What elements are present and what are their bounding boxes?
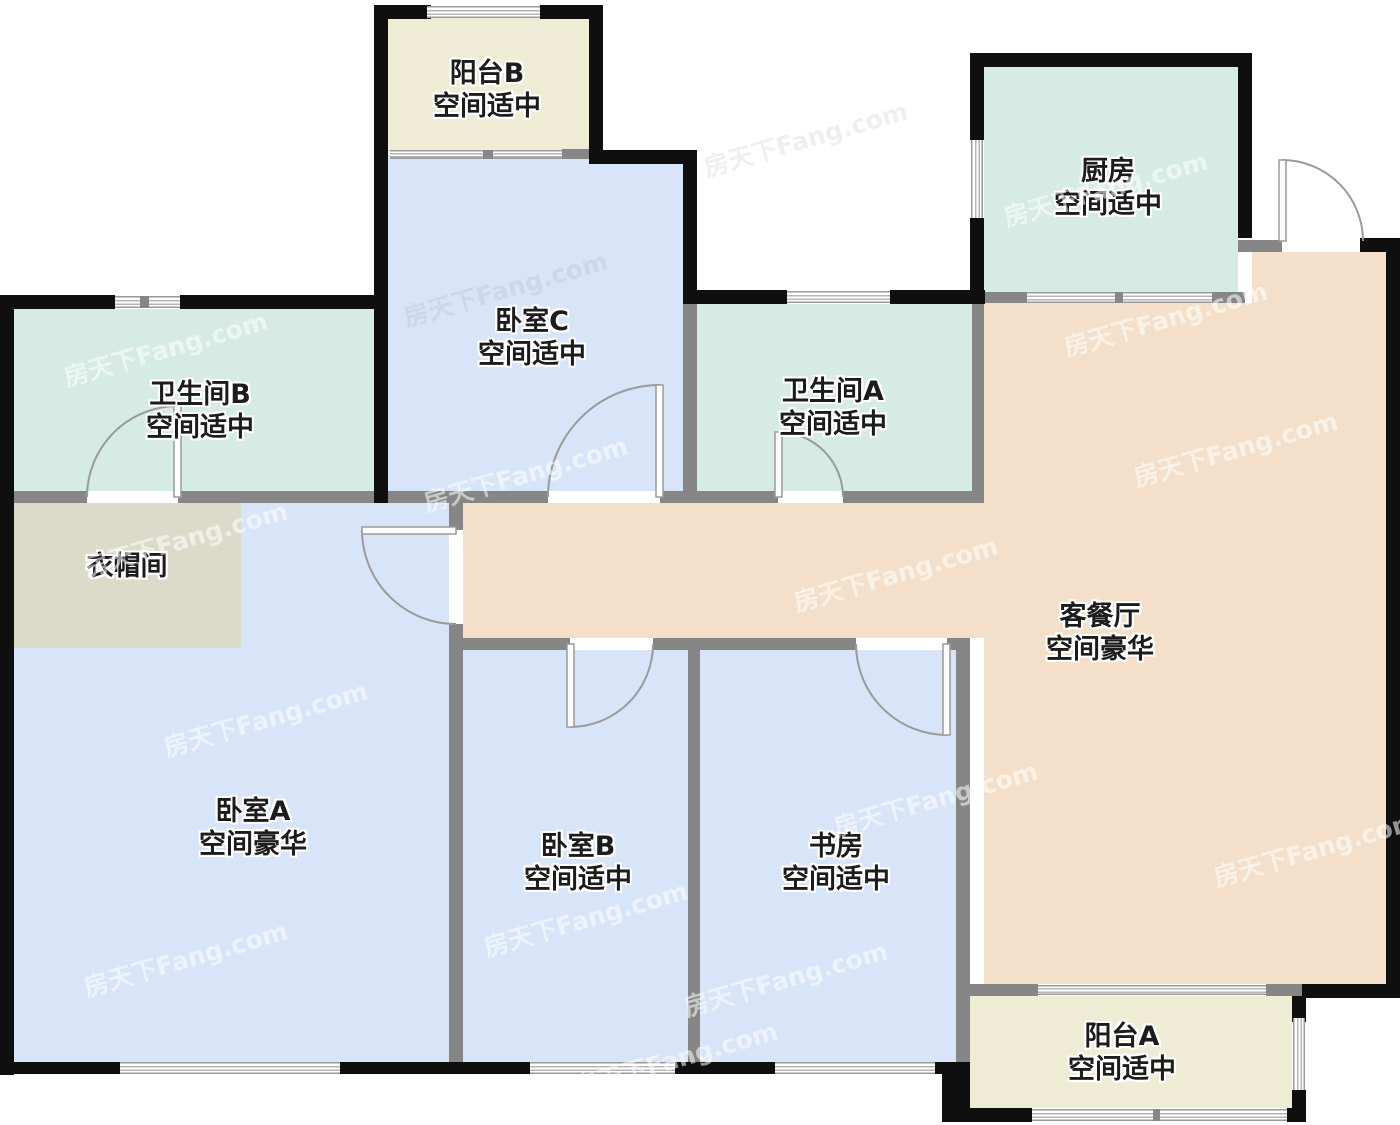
room-name: 书房	[782, 830, 890, 863]
door-bathroom-a	[775, 432, 843, 497]
room-name: 卧室B	[524, 830, 632, 863]
door-swings-layer	[0, 0, 1400, 1125]
room-label-cloakroom: 衣帽间	[87, 550, 168, 583]
room-name: 卫生间A	[779, 375, 887, 408]
room-desc: 空间适中	[782, 863, 890, 896]
room-label-bathroom-a: 卫生间A 空间适中	[779, 375, 887, 441]
room-label-bedroom-a: 卧室A 空间豪华	[199, 795, 307, 861]
room-label-balcony-b: 阳台B 空间适中	[433, 57, 541, 123]
room-desc: 空间适中	[1054, 188, 1162, 221]
room-label-bedroom-c: 卧室C 空间适中	[478, 305, 586, 371]
room-label-bedroom-b: 卧室B 空间适中	[524, 830, 632, 896]
room-name: 厨房	[1054, 155, 1162, 188]
room-name: 卧室C	[478, 305, 586, 338]
door-bedroom-c	[548, 385, 663, 497]
room-desc: 空间适中	[779, 408, 887, 441]
room-desc: 空间适中	[1068, 1053, 1176, 1086]
room-desc: 空间适中	[524, 863, 632, 896]
door-entry	[1279, 160, 1363, 241]
room-label-kitchen: 厨房 空间适中	[1054, 155, 1162, 221]
room-label-living-dining: 客餐厅 空间豪华	[1046, 600, 1154, 666]
room-name: 客餐厅	[1046, 600, 1154, 633]
floorplan-canvas: 阳台B 空间适中 厨房 空间适中 卫生间B 空间适中 卧室C 空间适中 卫生间A…	[0, 0, 1400, 1125]
room-name: 衣帽间	[87, 550, 168, 583]
door-study	[856, 644, 950, 735]
room-name: 卫生间B	[146, 378, 254, 411]
room-desc: 空间适中	[433, 90, 541, 123]
room-name: 阳台B	[433, 57, 541, 90]
room-desc: 空间豪华	[1046, 633, 1154, 666]
room-desc: 空间豪华	[199, 828, 307, 861]
room-name: 卧室A	[199, 795, 307, 828]
room-label-bathroom-b: 卫生间B 空间适中	[146, 378, 254, 444]
door-bedroom-a	[362, 527, 456, 624]
room-label-study: 书房 空间适中	[782, 830, 890, 896]
door-bedroom-b	[567, 644, 653, 727]
room-desc: 空间适中	[478, 338, 586, 371]
room-name: 阳台A	[1068, 1020, 1176, 1053]
room-label-balcony-a: 阳台A 空间适中	[1068, 1020, 1176, 1086]
room-desc: 空间适中	[146, 411, 254, 444]
